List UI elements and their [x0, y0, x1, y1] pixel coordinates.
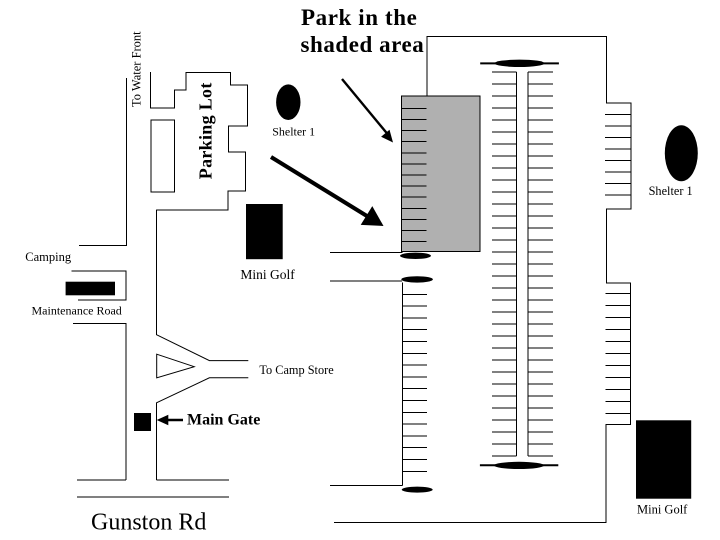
svg-text:Gunston Rd: Gunston Rd — [91, 510, 206, 536]
svg-text:Shelter 1: Shelter 1 — [649, 184, 693, 198]
svg-text:shaded area: shaded area — [301, 32, 425, 57]
svg-text:To Camp Store: To Camp Store — [259, 363, 334, 377]
svg-text:Mini Golf: Mini Golf — [240, 267, 295, 282]
svg-text:Camping: Camping — [25, 250, 72, 264]
svg-text:To Water Front: To Water Front — [130, 31, 144, 107]
svg-text:Main Gate: Main Gate — [187, 411, 260, 428]
svg-text:Mini Golf: Mini Golf — [637, 502, 688, 516]
svg-text:Park in the: Park in the — [301, 5, 418, 30]
svg-text:Maintenance Road: Maintenance Road — [32, 304, 122, 318]
svg-text:Shelter 1: Shelter 1 — [272, 125, 315, 139]
svg-text:Parking Lot: Parking Lot — [195, 82, 215, 179]
